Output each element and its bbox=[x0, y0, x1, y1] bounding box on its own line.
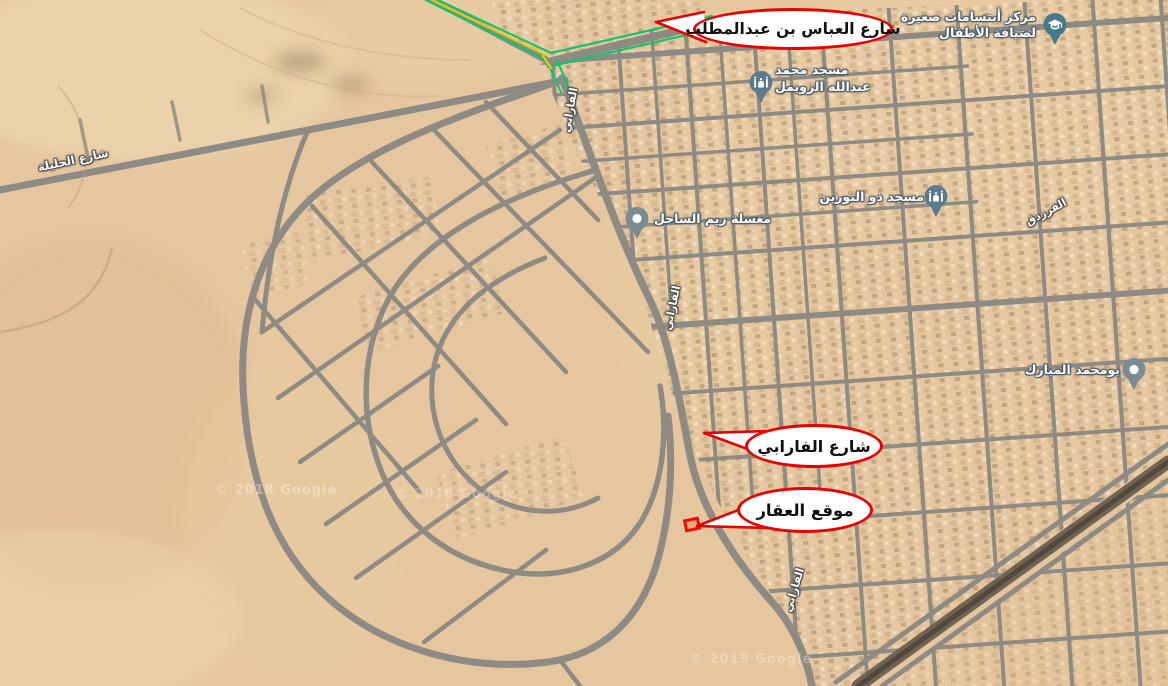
poi-mosque-zuwaimel-label-line2: عبدالله الزويمل bbox=[775, 79, 871, 94]
google-watermark: © 2019 Google bbox=[690, 652, 812, 667]
callout-property-location: موقع العقار bbox=[737, 487, 873, 533]
poi-mosque-zuwaimel-label-line1: مسجد محمد bbox=[775, 62, 848, 77]
poi-kids-center-label-line1: مركز أبتسامات صغيرة bbox=[901, 9, 1036, 24]
school-pin-icon bbox=[1042, 12, 1068, 46]
callout-farabi-street: شارع الفارابي bbox=[745, 424, 883, 468]
callout-abbas-street: شارع العباس بن عبدالمطلب bbox=[693, 8, 893, 50]
satellite-map-canvas bbox=[0, 0, 1168, 686]
poi-mosque-nurayn-label: مسجد ذو النورين bbox=[819, 189, 924, 204]
dot-pin-icon bbox=[624, 206, 650, 240]
google-watermark: © 2018 Google bbox=[395, 487, 517, 502]
google-watermark: © 2018 Google bbox=[215, 483, 337, 498]
callout-farabi-street-label: شارع الفارابي bbox=[757, 437, 870, 456]
mosque-pin-icon bbox=[923, 184, 949, 218]
callout-property-location-label: موقع العقار bbox=[756, 501, 853, 520]
callout-abbas-street-label: شارع العباس بن عبدالمطلب bbox=[685, 20, 900, 38]
dot-pin-icon bbox=[1121, 357, 1147, 391]
map-screenshot: © 2018 Google © 2018 Google © 2019 Googl… bbox=[0, 0, 1168, 686]
poi-laundry-reem-label: مغسلة ريم الساحل bbox=[654, 211, 771, 226]
poi-bu-mohammed-label: بومحمد المبارك bbox=[1025, 362, 1120, 377]
mosque-pin-icon bbox=[748, 70, 774, 104]
poi-kids-center-label-line2: لضيافة الأطفال bbox=[939, 25, 1036, 40]
